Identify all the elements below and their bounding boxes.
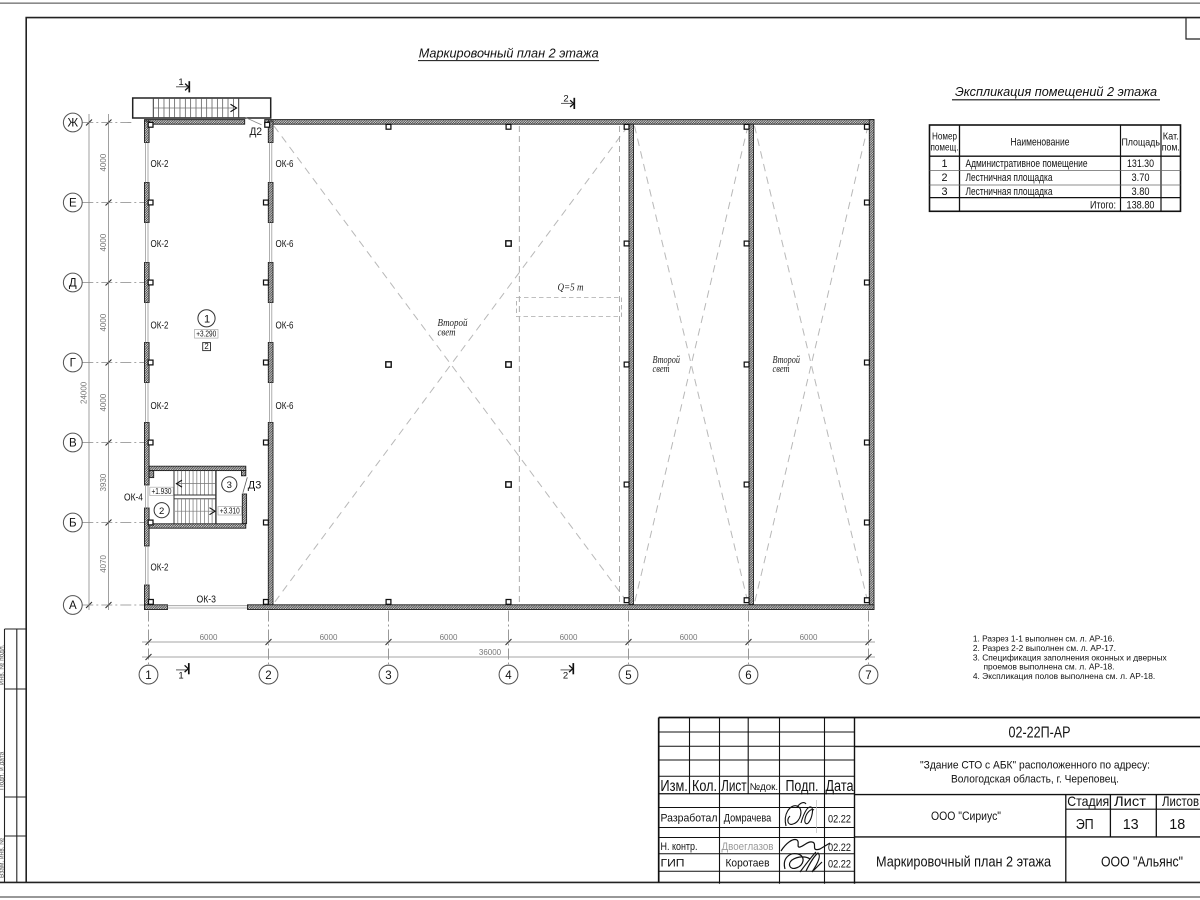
svg-text:Кат.: Кат.	[1163, 132, 1179, 143]
svg-text:ООО "Сириус": ООО "Сириус"	[931, 809, 1001, 823]
svg-text:помещ.: помещ.	[931, 143, 959, 154]
svg-text:4000: 4000	[99, 233, 108, 251]
svg-text:Стадия: Стадия	[1067, 793, 1109, 809]
svg-text:свет: свет	[438, 327, 456, 339]
svg-text:1: 1	[145, 670, 151, 682]
svg-text:13: 13	[1123, 816, 1139, 833]
svg-text:Наименование: Наименование	[1011, 137, 1070, 149]
svg-text:6000: 6000	[800, 633, 818, 642]
svg-text:7: 7	[865, 670, 871, 682]
svg-text:Н. контр.: Н. контр.	[661, 841, 698, 853]
svg-text:А: А	[69, 600, 77, 612]
svg-text:4000: 4000	[99, 153, 108, 171]
svg-text:ОК-2: ОК-2	[151, 239, 169, 250]
svg-text:Лестничная площадка: Лестничная площадка	[966, 172, 1053, 184]
svg-text:6000: 6000	[200, 633, 218, 642]
svg-text:6000: 6000	[680, 633, 698, 642]
svg-text:ОК-4: ОК-4	[124, 492, 143, 503]
svg-text:Q=5 т: Q=5 т	[558, 283, 584, 294]
svg-text:№док.: №док.	[750, 782, 779, 793]
svg-text:2: 2	[265, 670, 271, 682]
svg-text:6000: 6000	[560, 633, 578, 642]
svg-text:Лист: Лист	[721, 778, 747, 795]
svg-text:Маркировочный план 2 этажа: Маркировочный план 2 этажа	[419, 45, 599, 60]
svg-text:5: 5	[625, 670, 631, 682]
svg-text:Итого:: Итого:	[1090, 199, 1116, 211]
svg-text:Дата: Дата	[826, 778, 854, 795]
svg-text:ОК-2: ОК-2	[151, 321, 169, 332]
svg-text:6000: 6000	[440, 633, 458, 642]
svg-text:Взам. инв. №: Взам. инв. №	[0, 838, 6, 878]
svg-text:24000: 24000	[80, 381, 89, 404]
svg-text:2: 2	[204, 342, 208, 351]
svg-text:1: 1	[178, 77, 183, 88]
svg-text:2: 2	[159, 506, 164, 517]
svg-text:Изм.: Изм.	[660, 778, 688, 795]
svg-text:02.22: 02.22	[828, 859, 851, 871]
svg-text:Д: Д	[69, 278, 77, 290]
svg-text:Административное помещение: Административное помещение	[966, 158, 1088, 170]
svg-text:"Здание СТО с АБК" расположенн: "Здание СТО с АБК" расположенного по адр…	[920, 759, 1150, 771]
svg-text:ОК-6: ОК-6	[276, 239, 294, 250]
svg-text:Инв. № подл.: Инв. № подл.	[0, 644, 6, 685]
svg-text:Листов: Листов	[1162, 793, 1199, 809]
svg-text:свет: свет	[653, 364, 670, 375]
svg-text:138.80: 138.80	[1127, 199, 1155, 211]
svg-text:Лестничная площадка: Лестничная площадка	[966, 186, 1053, 198]
svg-text:Кол.: Кол.	[692, 778, 717, 795]
svg-text:ОК-2: ОК-2	[151, 401, 169, 412]
svg-text:ОК-2: ОК-2	[151, 159, 169, 170]
svg-text:Разработал: Разработал	[661, 812, 718, 824]
svg-text:3: 3	[227, 480, 232, 491]
svg-text:В: В	[69, 438, 77, 450]
svg-text:+3.290: +3.290	[196, 329, 217, 338]
svg-text:02-22П-АР: 02-22П-АР	[1009, 725, 1071, 742]
svg-text:6000: 6000	[320, 633, 338, 642]
svg-text:02.22: 02.22	[828, 813, 851, 825]
svg-text:6: 6	[745, 670, 751, 682]
svg-text:Экспликация помещений 2 этажа: Экспликация помещений 2 этажа	[955, 84, 1157, 99]
svg-text:4000: 4000	[99, 393, 108, 411]
svg-text:02.22: 02.22	[828, 842, 851, 854]
svg-text:Номер: Номер	[932, 132, 957, 143]
svg-text:Лист: Лист	[1114, 793, 1147, 809]
svg-text:Д2: Д2	[250, 126, 263, 138]
svg-text:Д3: Д3	[248, 480, 261, 492]
svg-text:4. Экспликация полов выполнена: 4. Экспликация полов выполнена см. л. АР…	[973, 671, 1155, 681]
svg-text:3930: 3930	[99, 473, 108, 491]
svg-text:Маркировочный план 2 этажа: Маркировочный план 2 этажа	[876, 853, 1052, 870]
svg-text:36000: 36000	[479, 648, 502, 657]
svg-text:2: 2	[563, 94, 568, 105]
svg-text:3.80: 3.80	[1132, 186, 1150, 198]
svg-text:ОК-3: ОК-3	[197, 595, 217, 606]
svg-text:Площадь: Площадь	[1121, 138, 1160, 149]
svg-text:3.70: 3.70	[1132, 172, 1150, 184]
svg-text:4070: 4070	[99, 554, 108, 572]
svg-text:Е: Е	[69, 198, 77, 210]
svg-text:Подп. и дата: Подп. и дата	[0, 751, 6, 790]
svg-text:Домрачева: Домрачева	[724, 812, 772, 824]
svg-text:1: 1	[178, 671, 183, 682]
svg-text:свет: свет	[773, 364, 790, 375]
svg-text:4000: 4000	[99, 313, 108, 331]
svg-text:Ж: Ж	[67, 118, 78, 130]
svg-text:+1.930: +1.930	[152, 487, 173, 496]
svg-text:Подп.: Подп.	[786, 778, 819, 795]
svg-text:Двоеглазов: Двоеглазов	[722, 841, 774, 853]
svg-text:Г: Г	[70, 358, 77, 370]
svg-text:1: 1	[204, 314, 210, 326]
svg-text:ОК-6: ОК-6	[276, 159, 294, 170]
svg-text:1: 1	[941, 158, 947, 170]
svg-text:+3.310: +3.310	[220, 506, 241, 515]
svg-text:ОК-6: ОК-6	[276, 401, 294, 412]
svg-text:ООО "Альянс": ООО "Альянс"	[1101, 853, 1183, 870]
svg-text:2: 2	[941, 172, 947, 184]
svg-text:Коротаев: Коротаев	[726, 858, 770, 870]
svg-text:3: 3	[941, 186, 947, 198]
svg-text:Вологодская область, г. Черепо: Вологодская область, г. Череповец.	[951, 773, 1119, 785]
svg-text:Б: Б	[69, 518, 77, 530]
svg-text:131.30: 131.30	[1127, 158, 1154, 170]
svg-text:ГИП: ГИП	[661, 858, 685, 870]
svg-text:4: 4	[505, 670, 512, 682]
svg-text:3: 3	[385, 670, 391, 682]
svg-text:ЭП: ЭП	[1076, 816, 1094, 833]
svg-text:18: 18	[1169, 816, 1185, 833]
svg-text:пом.: пом.	[1162, 143, 1180, 154]
svg-text:ОК-6: ОК-6	[276, 321, 294, 332]
svg-text:ОК-2: ОК-2	[151, 563, 169, 574]
svg-text:2: 2	[563, 671, 568, 682]
